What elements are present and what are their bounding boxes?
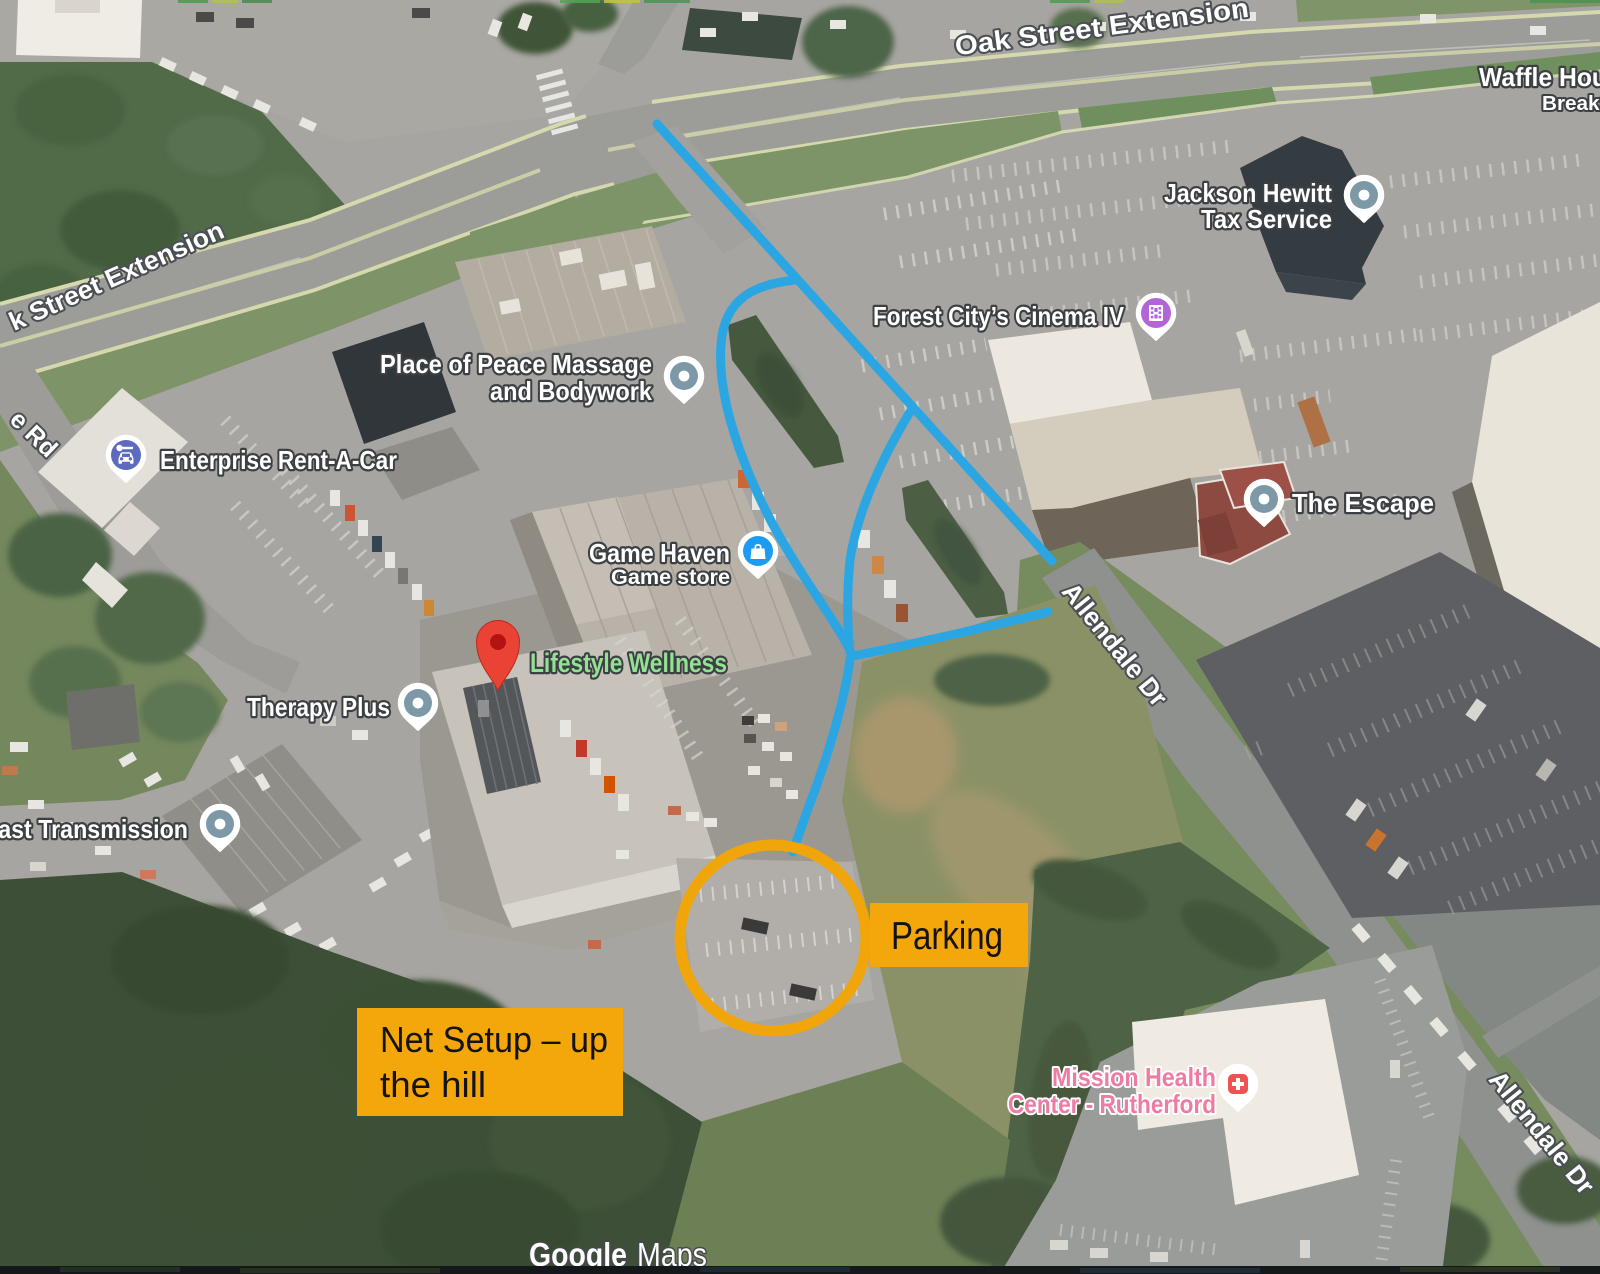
svg-text:Waffle Hou: Waffle Hou (1479, 62, 1600, 92)
svg-text:the hill: the hill (380, 1064, 486, 1105)
svg-text:Therapy Plus: Therapy Plus (247, 692, 390, 722)
svg-text:Parking: Parking (891, 915, 1003, 958)
svg-text:and Bodywork: and Bodywork (490, 376, 652, 406)
svg-text:Tax Service: Tax Service (1201, 204, 1332, 234)
svg-text:Game Haven: Game Haven (589, 538, 730, 568)
svg-text:Forest City’s Cinema IV: Forest City’s Cinema IV (873, 301, 1125, 331)
svg-text:Breakfa: Breakfa (1542, 93, 1600, 115)
svg-text:Fast Transmission: Fast Transmission (0, 814, 188, 844)
svg-text:Game store: Game store (611, 566, 730, 589)
svg-text:Center - Rutherford: Center - Rutherford (1008, 1089, 1216, 1119)
svg-text:Place of Peace Massage: Place of Peace Massage (380, 349, 652, 379)
svg-text:Enterprise Rent-A-Car: Enterprise Rent-A-Car (160, 445, 397, 475)
svg-text:The Escape: The Escape (1292, 488, 1434, 518)
svg-text:Net Setup – up: Net Setup – up (380, 1019, 608, 1060)
svg-text:Lifestyle Wellness: Lifestyle Wellness (530, 648, 727, 678)
svg-text:Mission Health: Mission Health (1052, 1062, 1216, 1092)
